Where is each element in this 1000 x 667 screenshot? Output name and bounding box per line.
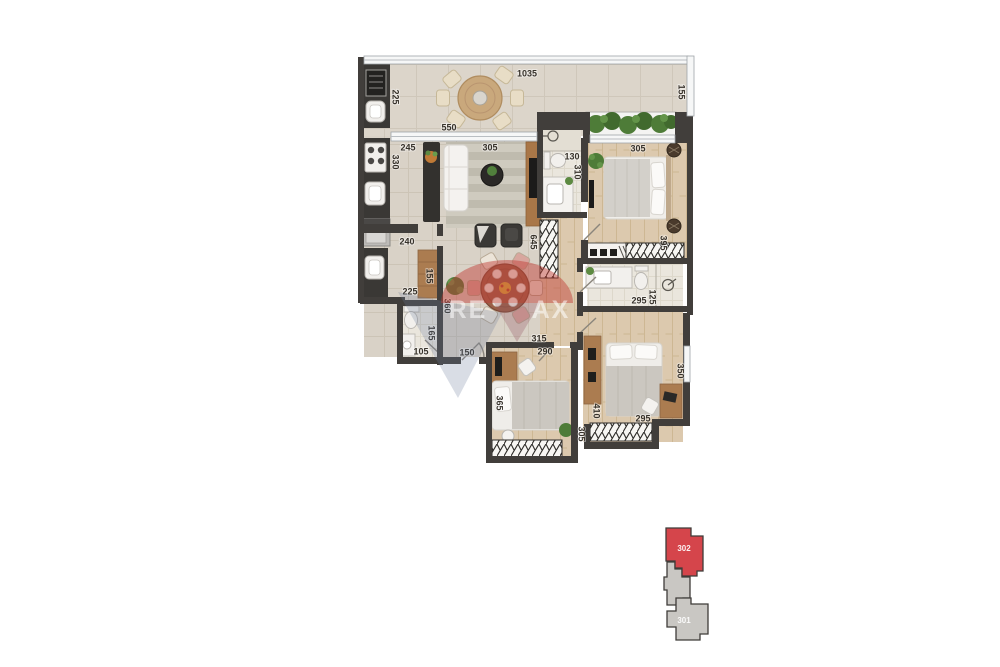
bedroom3-shelf xyxy=(584,336,601,404)
dim-label: 305 xyxy=(482,142,497,152)
wall xyxy=(537,112,543,218)
dim-label: 645 xyxy=(529,234,539,249)
grill-icon xyxy=(366,70,386,96)
dim-label: 155 xyxy=(425,268,435,283)
wall xyxy=(577,332,583,350)
headboard xyxy=(666,155,671,221)
toilet-tank xyxy=(544,152,550,169)
wall xyxy=(687,140,693,315)
wall xyxy=(583,112,590,143)
wall xyxy=(360,224,418,233)
dim-label: 295 xyxy=(631,295,646,305)
wall xyxy=(537,212,587,218)
dim-label: 350 xyxy=(676,363,686,378)
vanity-sink-icon xyxy=(547,184,563,204)
floor-plan-page: 1035 155 225 550 245 330 305 130 310 305… xyxy=(0,0,1000,667)
dim-label: 295 xyxy=(635,413,650,423)
keyplan-unit-302-label: 302 xyxy=(677,544,691,553)
bedroom3-wardrobe xyxy=(590,423,652,441)
bedroom2-desk xyxy=(490,352,517,383)
dim-label: 290 xyxy=(537,346,552,356)
toilet-icon xyxy=(551,154,566,168)
dim-label: 130 xyxy=(564,151,579,161)
planter-box xyxy=(586,112,678,138)
dim-label: 330 xyxy=(391,154,401,169)
wall xyxy=(397,300,403,363)
dim-label: 105 xyxy=(413,346,428,356)
terrace-chair xyxy=(437,90,450,106)
dim-label: 305 xyxy=(577,426,587,441)
wall xyxy=(581,306,690,312)
wall xyxy=(486,456,576,463)
bath-sink-icon xyxy=(594,271,611,284)
wall xyxy=(581,240,588,260)
sofa xyxy=(444,145,468,211)
watermark-text-left: RE xyxy=(449,296,488,324)
dim-label: 305 xyxy=(630,143,645,153)
dim-label: 155 xyxy=(677,84,687,99)
floor-plan-svg: 1035 155 225 550 245 330 305 130 310 305… xyxy=(0,0,1000,667)
wall xyxy=(358,57,364,303)
key-plan: 302 301 xyxy=(664,528,708,640)
wall xyxy=(581,258,690,264)
bedroom2-plant-icon xyxy=(559,423,573,437)
wall xyxy=(570,342,578,348)
dim-label: 550 xyxy=(441,122,456,132)
dim-label: 225 xyxy=(391,89,401,104)
suite-tv-icon xyxy=(589,180,594,208)
dim-label: 240 xyxy=(399,236,414,246)
dim-label: 245 xyxy=(400,142,415,152)
dim-label: 310 xyxy=(573,164,583,179)
bath-plant-icon xyxy=(586,267,594,275)
wall xyxy=(675,112,693,143)
pillow xyxy=(635,344,658,359)
terrace-table-plate xyxy=(473,91,487,105)
terrace-chair xyxy=(511,90,524,106)
dim-label: 125 xyxy=(648,289,658,304)
tv-icon xyxy=(529,158,537,198)
coffee-table-plant-icon xyxy=(487,166,497,176)
bedroom2-wardrobe xyxy=(492,440,562,458)
wall xyxy=(437,224,443,236)
stove-icon xyxy=(365,143,386,172)
dim-label: 315 xyxy=(531,333,546,343)
lavabo-sink-icon xyxy=(403,341,411,349)
dim-label: 365 xyxy=(495,395,505,410)
terrace-railing-right xyxy=(687,56,694,116)
toilet-tank xyxy=(635,266,648,271)
pillow xyxy=(651,189,666,215)
wall xyxy=(577,292,583,308)
pillow xyxy=(651,162,666,188)
wall xyxy=(486,342,492,463)
wall xyxy=(577,258,583,272)
dim-label: 395 xyxy=(659,235,669,250)
pillow xyxy=(610,344,633,359)
keyplan-unit-301-label: 301 xyxy=(677,616,691,625)
small-plant-icon xyxy=(565,177,573,185)
wall xyxy=(571,348,578,463)
monitor-icon xyxy=(495,357,502,376)
wall xyxy=(479,357,487,364)
wall xyxy=(584,442,658,449)
watermark-text-right: AX xyxy=(532,296,571,324)
toilet-icon xyxy=(635,273,648,290)
wall xyxy=(537,112,583,130)
dim-label: 410 xyxy=(592,403,602,418)
gourmet-counter xyxy=(361,64,390,128)
dim-label: 1035 xyxy=(517,68,537,78)
